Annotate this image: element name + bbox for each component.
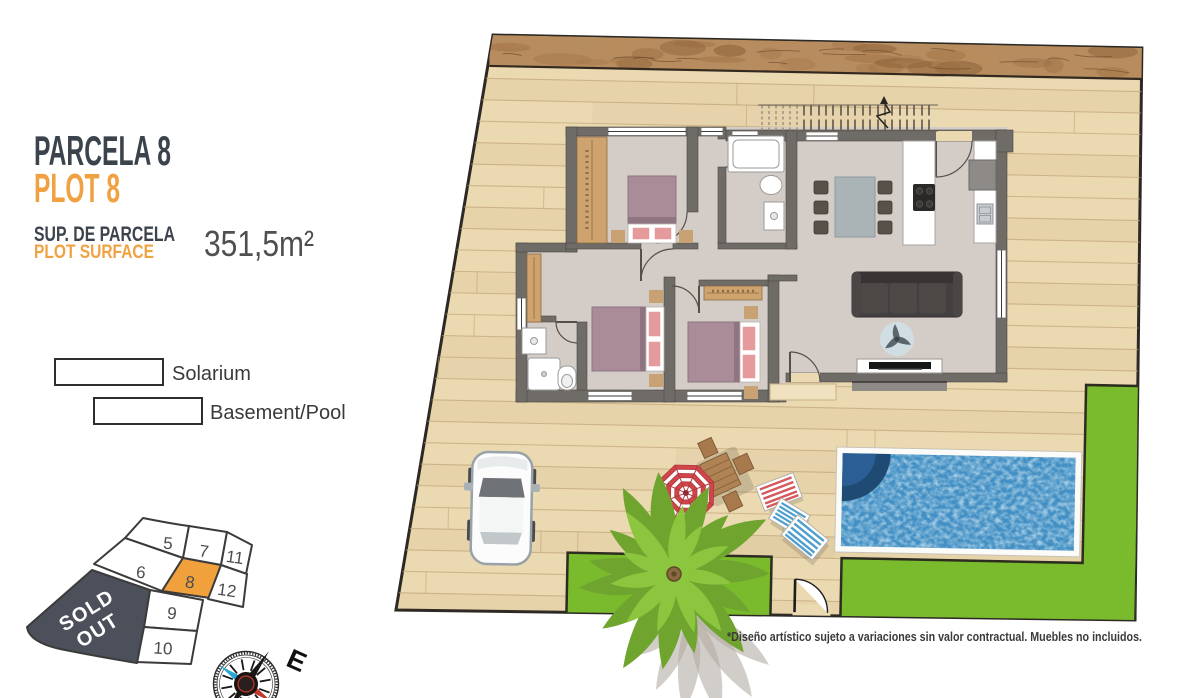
svg-text:11: 11 <box>225 547 245 568</box>
svg-text:12: 12 <box>216 580 237 601</box>
svg-text:*Diseño artístico sujeto a var: *Diseño artístico sujeto a variaciones s… <box>727 630 1142 644</box>
svg-text:PLOT 8: PLOT 8 <box>34 165 120 211</box>
svg-text:351,5m²: 351,5m² <box>204 223 314 264</box>
svg-text:5: 5 <box>163 534 174 554</box>
svg-text:PLOT SURFACE: PLOT SURFACE <box>34 242 154 263</box>
svg-text:E: E <box>282 643 311 678</box>
svg-text:Basement/Pool: Basement/Pool <box>210 402 346 424</box>
svg-text:Solarium: Solarium <box>172 363 251 385</box>
svg-text:6: 6 <box>135 563 146 583</box>
svg-text:9: 9 <box>166 604 177 624</box>
svg-text:10: 10 <box>153 638 173 658</box>
